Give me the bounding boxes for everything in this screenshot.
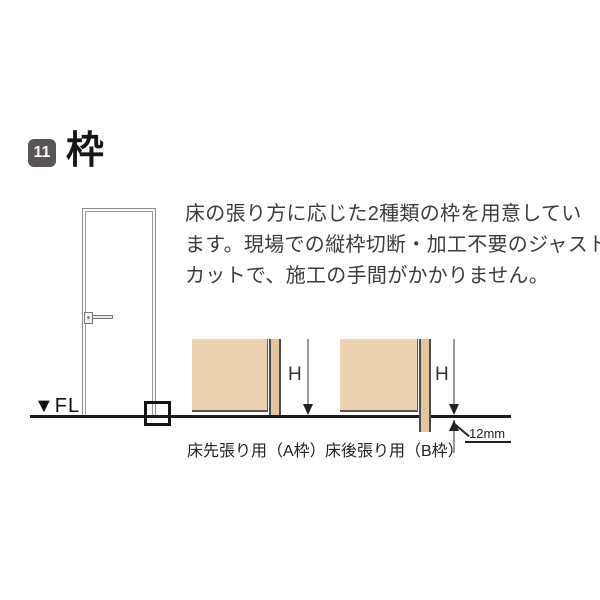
diagram-a-arrow-down-icon (303, 404, 313, 415)
door-handle-spindle (87, 316, 90, 319)
diagram-a-caption: 床先張り用（A枠） (187, 437, 326, 461)
diagram-a-frame-strip (269, 339, 281, 415)
diagram-a-height-label: H (288, 364, 302, 386)
diagram-b-frame-strip (419, 339, 431, 432)
door-panel-outline (85, 211, 153, 415)
catalog-page: 11 枠 床の張り方に応じた2種類の枠を用意してい ます。現場での縦枠切断・加工… (0, 0, 600, 600)
diagram-b-dimension-line (453, 339, 455, 413)
description-paragraph: 床の張り方に応じた2種類の枠を用意してい ます。現場での縦枠切断・加工不要のジャ… (185, 199, 590, 292)
section-number-badge: 11 (28, 139, 56, 167)
description-line-3: カットで、施工の手間がかかりません。 (185, 261, 590, 292)
door-elevation-drawing (82, 208, 156, 415)
diagram-b-caption: 床後張り用（B枠） (325, 437, 464, 461)
detail-callout-box (144, 401, 171, 426)
diagram-b-arrow-down-icon (449, 404, 459, 415)
description-line-1: 床の張り方に応じた2種類の枠を用意してい (185, 199, 590, 230)
diagram-b-offset-underline (465, 441, 511, 443)
diagram-a-wall (192, 339, 268, 412)
diagram-a-dimension-line (307, 339, 309, 413)
floor-line (30, 415, 419, 418)
page-title: 枠 (66, 129, 104, 173)
diagram-b-offset-label: 12mm (469, 426, 505, 441)
diagram-b-height-label: H (435, 364, 449, 386)
floor-line-right-segment (431, 415, 511, 418)
diagram-b-wall (340, 339, 418, 412)
door-handle-lever (92, 315, 113, 319)
description-line-2: ます。現場での縦枠切断・加工不要のジャスト (185, 230, 590, 261)
